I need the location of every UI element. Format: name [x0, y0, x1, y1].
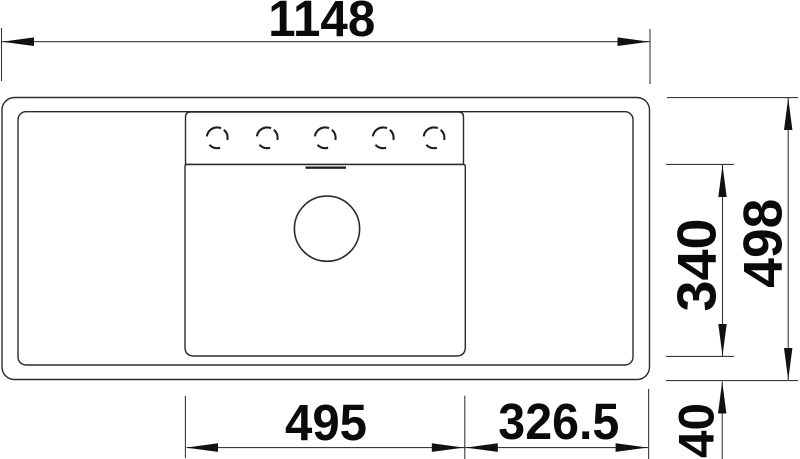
svg-text:495: 495	[285, 394, 367, 451]
svg-text:40: 40	[668, 403, 724, 458]
svg-text:498: 498	[731, 199, 793, 288]
svg-text:340: 340	[665, 219, 727, 312]
svg-text:1148: 1148	[268, 0, 375, 47]
svg-text:326.5: 326.5	[498, 393, 619, 450]
